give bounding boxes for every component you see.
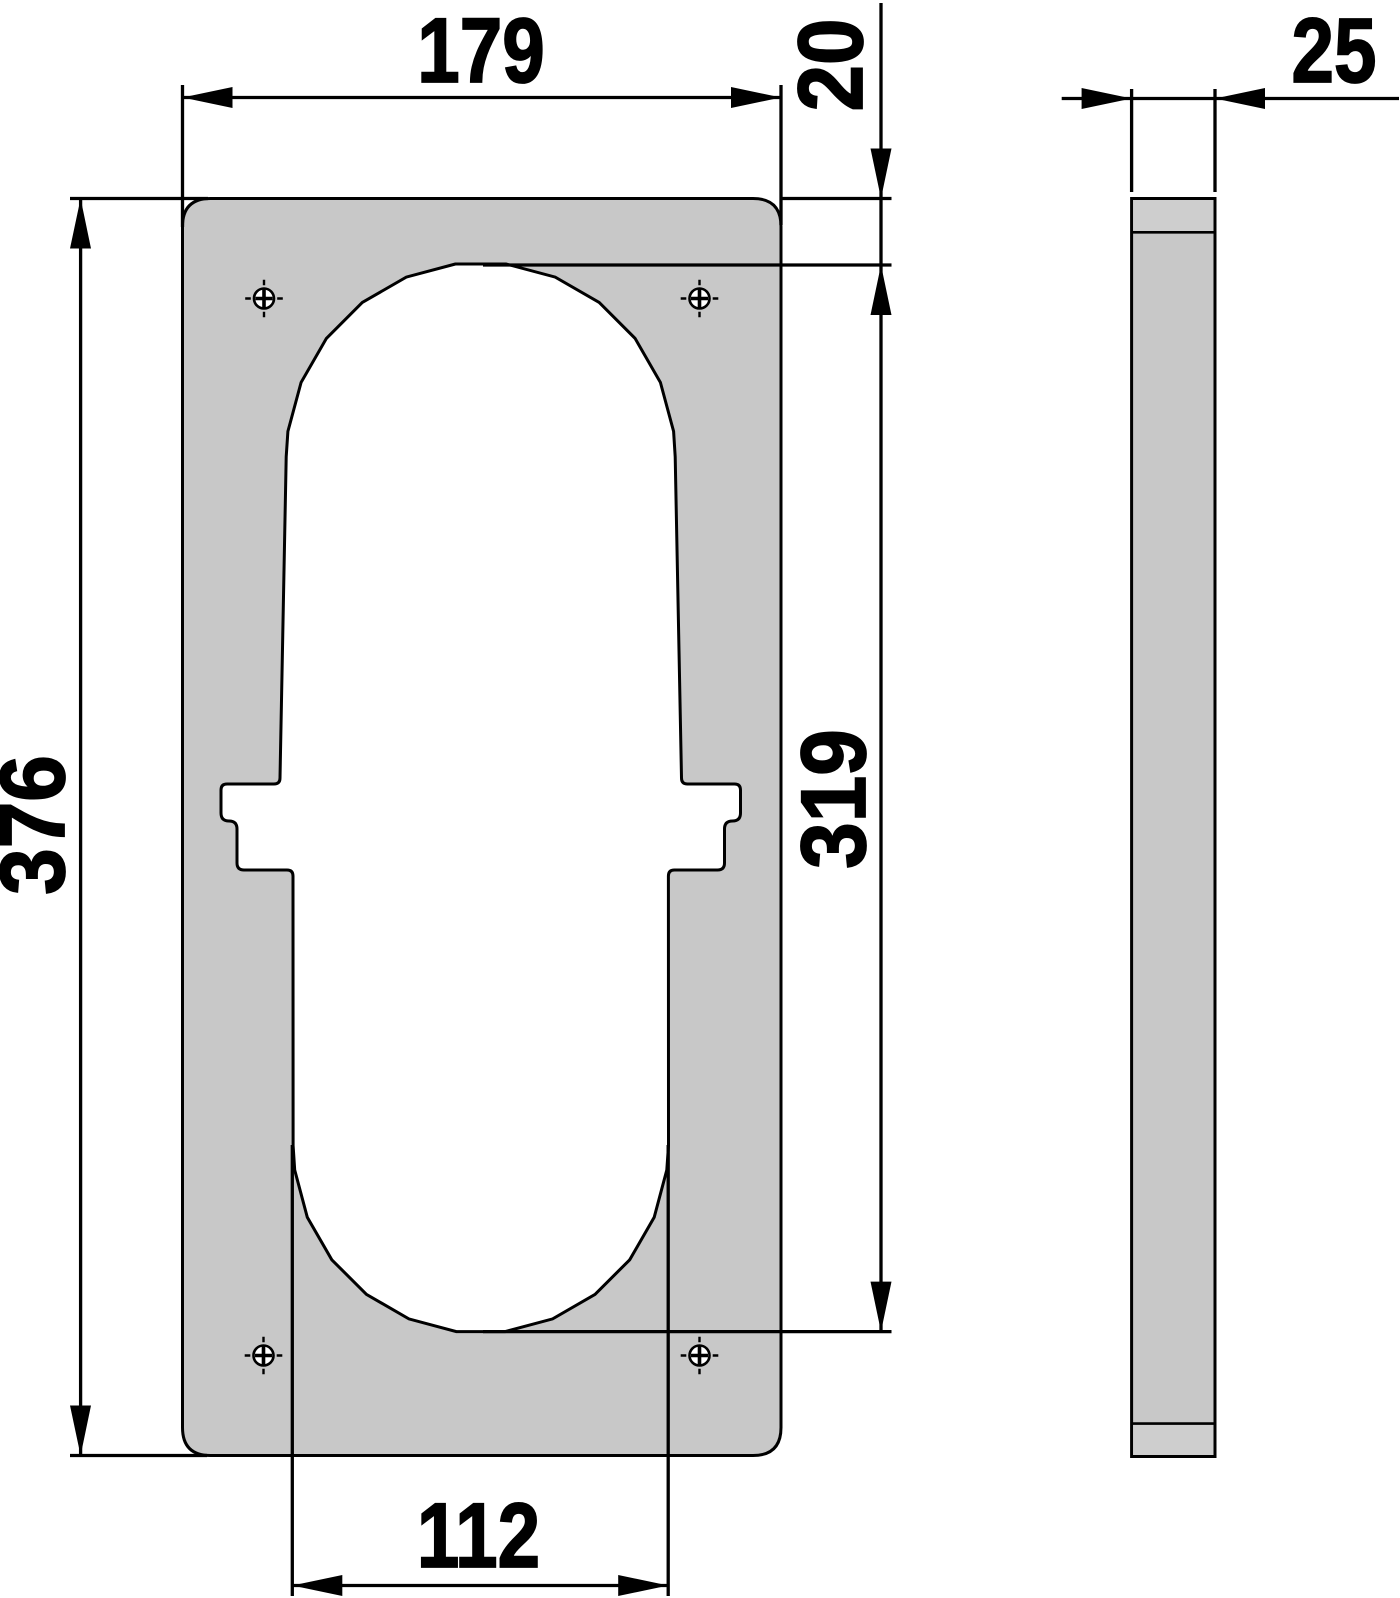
- svg-text:376: 376: [0, 755, 84, 895]
- svg-text:179: 179: [417, 0, 544, 102]
- svg-text:319: 319: [781, 729, 885, 869]
- svg-text:20: 20: [778, 18, 882, 111]
- svg-text:112: 112: [417, 1483, 540, 1586]
- svg-text:25: 25: [1292, 0, 1377, 102]
